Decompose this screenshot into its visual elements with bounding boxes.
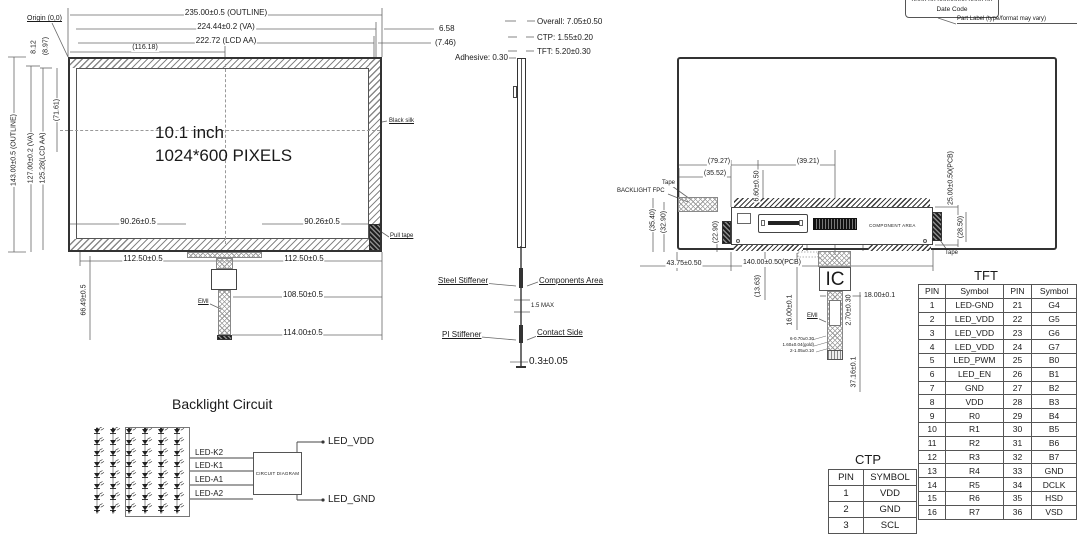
table-cell: B4 [1032,409,1077,423]
dim-center-y: (71.61) [54,98,61,122]
table-row: 6LED_EN26B1 [919,367,1077,381]
emi-label-back: EMI [806,313,819,320]
pcb-bottom-bar-left [733,245,803,251]
table-cell: G7 [1032,340,1077,354]
table-cell: 21 [1003,298,1031,312]
dim-3290: (32.90) [661,210,668,234]
table-cell: 34 [1003,478,1031,492]
table-cell: LED_VDD [946,340,1004,354]
pcb-screw-right [923,239,927,243]
column-header: Symbol [946,285,1004,299]
table-cell: 3 [919,326,946,340]
black-silk-label: Black silk [388,118,415,125]
dim-top-gap: 8.12 [31,39,38,55]
table-cell: 27 [1003,381,1031,395]
dim-va-height: 127.00±0.2 (VA) [28,132,35,184]
dim-270: 2.70±0.30 [846,293,853,326]
dim-right-gap2: (7.46) [434,38,457,47]
table-cell: B3 [1032,395,1077,409]
dim-screw-right: 90.26±0.5 [303,217,341,226]
dim-aa-height: 125.28(LCD AA) [40,132,47,185]
table-row: 7GND27B2 [919,381,1077,395]
fpc-connector-end [217,335,232,340]
fpc-gold-notes: 6-0.70±0.30 1.60±0.04(gold) 2-1.05±0.10 [778,336,814,354]
table-cell: GND [864,502,917,518]
table-cell: 7 [919,381,946,395]
dim-bottom-right: 112.50±0.5 [283,254,324,263]
tape-label-left: Tape [661,180,676,187]
emi-label-front: EMI [197,299,210,306]
table-cell: 24 [1003,340,1031,354]
led-array-outline [125,427,190,517]
dim-4375: 43.75±0.50 [666,260,703,268]
table-cell: 22 [1003,312,1031,326]
table-cell: 32 [1003,450,1031,464]
back-fpc-gold-fingers [827,350,843,360]
pcb-bottom-bar-right [868,245,931,251]
dim-bottom-left: 112.50±0.5 [122,254,163,263]
table-cell: G4 [1032,298,1077,312]
table-cell: 14 [919,478,946,492]
table-cell: DCLK [1032,478,1077,492]
table-cell: 6 [919,367,946,381]
table-cell: 36 [1003,505,1031,519]
table-cell: LED_PWM [946,353,1004,367]
table-cell: 25 [1003,353,1031,367]
table-cell: B1 [1032,367,1077,381]
column-header: Symbol [1032,285,1077,299]
table-cell: LED-GND [946,298,1004,312]
table-cell: LED_EN [946,367,1004,381]
table-cell: 10 [919,422,946,436]
steel-stiffener-label: Steel Stiffener [437,276,489,285]
dim-right-gap: 6.58 [438,24,456,33]
table-cell: VSD [1032,505,1077,519]
back-fpc-tail-window [829,300,841,326]
dim-tail-v: 66.49±0.5 [81,283,88,316]
tft-pin-table: PINSymbolPINSymbol1LED-GND21G42LED_VDD22… [918,284,1077,520]
datasheet-drawing: 10.1 inch 1024*600 PIXELS 235.00±0.5 (OU… [0,0,1077,538]
fpc-connector-1-slot [768,221,800,225]
wire-label-leda1: LED-A1 [194,475,224,484]
side-tail-end-tick [516,366,526,368]
tape-label-right: Tape [944,250,959,257]
table-cell: R5 [946,478,1004,492]
table-cell: 15 [919,491,946,505]
ic-box: IC [819,267,851,291]
table-cell: 12 [919,450,946,464]
pull-tape-label: Pull tape [389,233,414,240]
table-cell: HSD [1032,491,1077,505]
fpc-sticker [211,269,237,290]
table-row: 11R231B6 [919,436,1077,450]
panel-resolution: 1024*600 PIXELS [155,145,292,168]
panel-size-label: 10.1 inch 1024*600 PIXELS [155,122,292,168]
dim-fpc-114: 114.00±0.5 [282,328,323,337]
part-label-note: Part Label (type/format may vary) [957,16,1077,24]
dim-3921: (39.21) [796,158,820,166]
table-cell: 13 [919,464,946,478]
backlight-fpc-block [678,197,718,212]
dim-15max: 1.5 MAX [530,303,555,310]
pull-tape-block [369,224,381,251]
fpc-connector-1-latch-left [761,220,765,226]
part-number-line: XXXX-XX-XXXXXXXX-XXXX-XX [906,0,998,3]
panel-size-inch: 10.1 inch [155,122,292,145]
pcb-top-bar [734,198,930,207]
table-row: 1VDD [829,486,917,502]
column-header: PIN [919,285,946,299]
table-row: 2GND [829,502,917,518]
table-cell: G6 [1032,326,1077,340]
dim-7927: (79.27) [707,158,731,166]
dim-2290: (22.90) [713,220,720,244]
fpc-tail [218,290,231,335]
table-cell: 2 [829,502,864,518]
table-cell: G5 [1032,312,1077,326]
table-cell: 31 [1003,436,1031,450]
table-row: 9R029B4 [919,409,1077,423]
date-code-label: Date Code [906,6,998,13]
wire-label-ledk1: LED-K1 [194,461,224,470]
table-cell: R2 [946,436,1004,450]
table-cell: 16 [919,505,946,519]
steel-stiffener-block [519,268,523,288]
table-cell: 28 [1003,395,1031,409]
backlight-fpc-label: BACKLIGHT FPC [616,188,666,195]
table-cell: VDD [864,486,917,502]
table-cell: 33 [1003,464,1031,478]
led-vdd-label: LED_VDD [327,436,375,448]
dim-ctp-thickness: CTP: 1.55±0.20 [536,33,594,42]
pin-table: PINSYMBOL1VDD2GND3SCL [828,469,917,534]
table-cell: 11 [919,436,946,450]
table-row: 8VDD28B3 [919,395,1077,409]
table-cell: R6 [946,491,1004,505]
table-cell: 1 [829,486,864,502]
table-cell: 29 [1003,409,1031,423]
table-cell: 5 [919,353,946,367]
table-row: 2LED_VDD22G5 [919,312,1077,326]
table-cell: 1 [919,298,946,312]
table-cell: GND [946,381,1004,395]
table-header-row: PINSYMBOL [829,470,917,486]
side-profile-layer-line [521,59,522,247]
dim-3552: (35.52) [703,170,727,178]
pin-table: PINSymbolPINSymbol1LED-GND21G42LED_VDD22… [918,284,1077,520]
table-cell: 2 [919,312,946,326]
table-row: 3LED_VDD23G6 [919,326,1077,340]
table-cell: 30 [1003,422,1031,436]
table-row: 13R433GND [919,464,1077,478]
components-area-label: Components Area [538,276,604,285]
side-camera-notch [513,86,517,98]
table-cell: R4 [946,464,1004,478]
dim-aa-width: 222.72 (LCD AA) [195,36,257,45]
table-row: 10R130B5 [919,422,1077,436]
column-header: SYMBOL [864,470,917,486]
dim-va-width: 224.44±0.2 (VA) [196,22,256,31]
table-cell: B5 [1032,422,1077,436]
wire-label-ledk2: LED-K2 [194,448,224,457]
table-cell: LED_VDD [946,326,1004,340]
backlight-circuit-title: Backlight Circuit [172,396,272,412]
origin-label: Origin (0,0) [26,15,63,23]
table-cell: 4 [919,340,946,354]
table-cell: B0 [1032,353,1077,367]
tape-block-right [932,212,942,241]
pcb-small-component [737,213,751,224]
circuit-diagram-box: CIRCUIT DIAGRAM [253,452,302,495]
dim-1363: (13.63) [755,274,762,298]
fpc-note-3: 2-1.05±0.10 [778,348,814,354]
table-cell: LED_VDD [946,312,1004,326]
table-cell: SCL [864,518,917,534]
table-cell: 35 [1003,491,1031,505]
dim-2850: (28.50) [958,215,965,239]
column-header: PIN [829,470,864,486]
dim-overall-thickness: Overall: 7.05±0.50 [536,17,603,26]
dim-140pcb: 140.00±0.50(PCB) [742,259,802,267]
table-row: 5LED_PWM25B0 [919,353,1077,367]
led-gnd-label: LED_GND [327,494,376,506]
table-cell: R3 [946,450,1004,464]
circuit-diagram-label: CIRCUIT DIAGRAM [254,453,301,494]
dim-tft-thickness: TFT: 5.20±0.30 [536,47,592,56]
pcb-screw-left [736,239,740,243]
dim-top-gap2: (8.97) [43,36,50,56]
table-row: 14R534DCLK [919,478,1077,492]
column-header: PIN [1003,285,1031,299]
table-cell: 23 [1003,326,1031,340]
ic-label: IC [820,268,850,292]
table-row: 1LED-GND21G4 [919,298,1077,312]
dim-tail-thickness: 0.3±0.05 [528,356,569,368]
dim-center-x: (116.18) [131,44,159,52]
dim-fpc-108: 108.50±0.5 [282,290,324,299]
dim-16: 16.00±0.1 [787,293,794,326]
dim-660: 6.60±0.50 [754,169,761,202]
dim-outline-height: 143.00±0.5 (OUTLINE) [11,113,18,187]
table-cell: GND [1032,464,1077,478]
back-tail-shoulder [818,251,851,267]
table-cell: 3 [829,518,864,534]
dim-3540: (35.40) [650,208,657,232]
fpc-note-2: 1.60±0.04(gold) [778,342,814,348]
table-row: 16R736VSD [919,505,1077,519]
table-cell: B7 [1032,450,1077,464]
dim-18: 18.00±0.1 [863,292,896,300]
dim-screw-left: 90.26±0.5 [119,217,157,226]
table-row: 12R332B7 [919,450,1077,464]
contact-side-label: Contact Side [536,328,584,337]
table-row: 15R635HSD [919,491,1077,505]
dim-outline-width: 235.00±0.5 (OUTLINE) [184,8,268,17]
table-cell: 9 [919,409,946,423]
table-cell: B2 [1032,381,1077,395]
fpc-neck [216,258,233,269]
ctp-table-title: CTP [828,452,908,467]
table-cell: R1 [946,422,1004,436]
dim-3716: 37.16±0.1 [851,355,858,388]
dim-adhesive: Adhesive: 0.30 [454,53,509,62]
side-view-dim-lines [470,21,538,368]
tape-block-left [722,221,731,244]
pi-stiffener-block [519,325,523,343]
dim-25pcb: 25.00±0.50(PCB) [948,150,955,206]
front-bezel-right [369,59,380,250]
board-connector-2 [813,218,857,230]
table-cell: 26 [1003,367,1031,381]
fpc-connector-1-latch-right [799,220,803,226]
table-cell: VDD [946,395,1004,409]
tft-table-title: TFT [918,268,1054,283]
table-row: 4LED_VDD24G7 [919,340,1077,354]
pi-stiffener-label: PI Stiffener [441,330,482,339]
table-row: 3SCL [829,518,917,534]
ctp-pin-table: PINSYMBOL1VDD2GND3SCL [828,469,917,534]
table-cell: 8 [919,395,946,409]
wire-label-leda2: LED-A2 [194,489,224,498]
table-header-row: PINSymbolPINSymbol [919,285,1077,299]
table-cell: B6 [1032,436,1077,450]
table-cell: R7 [946,505,1004,519]
table-cell: R0 [946,409,1004,423]
component-area-label: COMPONENT AREA [869,223,916,228]
